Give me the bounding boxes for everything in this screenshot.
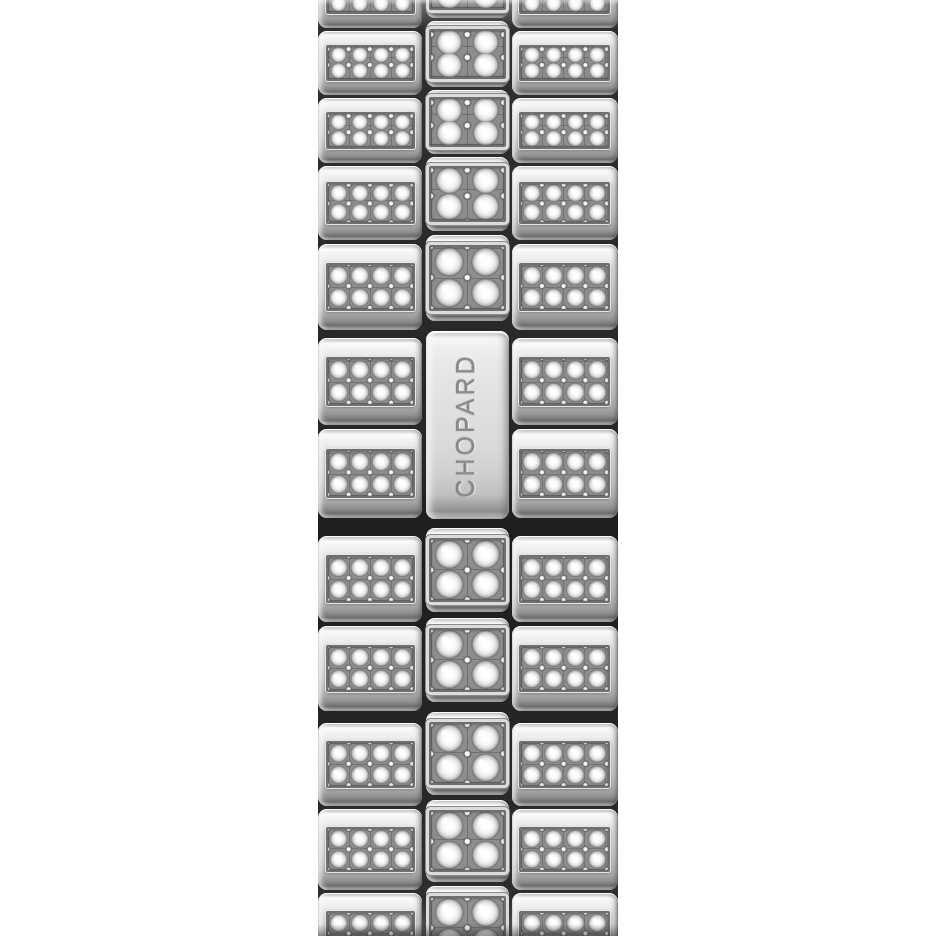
bracelet-link	[426, 21, 509, 87]
diamond-pave-panel	[429, 97, 505, 146]
bracelet-link	[318, 626, 422, 711]
diamond-pave-panel	[519, 449, 610, 498]
bracelet-link	[318, 893, 422, 936]
partial-bracelet-link	[318, 0, 422, 28]
diamond-pave-panel	[326, 0, 415, 14]
partial-bracelet-link	[512, 893, 618, 936]
bracelet-link	[512, 536, 618, 622]
diamond-pave-panel	[429, 245, 505, 310]
diamond-pave-panel	[326, 827, 415, 872]
diamond-pave-panel	[326, 911, 415, 936]
diamond-pave-panel	[429, 29, 505, 80]
bracelet-link	[318, 338, 422, 425]
bracelet-link	[512, 893, 618, 936]
bracelet-link	[318, 536, 422, 622]
bracelet-link	[512, 338, 618, 425]
bracelet-link	[426, 157, 509, 231]
brand-engraving: CHOPARD	[453, 353, 482, 497]
diamond-pave-panel	[429, 896, 505, 936]
bracelet-link	[426, 0, 509, 18]
diamond-pave-panel	[429, 166, 505, 223]
bracelet-link	[426, 235, 509, 321]
bracelet-link	[426, 886, 509, 936]
diamond-pave-panel	[519, 45, 610, 82]
bracelet-link	[512, 244, 618, 330]
diamond-pave-panel	[326, 182, 415, 224]
bracelet-link	[512, 0, 618, 28]
product-photo: CHOPARD	[0, 0, 936, 936]
bracelet-link	[318, 244, 422, 330]
diamond-pave-panel	[519, 911, 610, 936]
bracelet-link	[512, 98, 618, 163]
bracelet-link	[512, 626, 618, 711]
partial-bracelet-link	[426, 0, 509, 18]
diamond-pave-panel	[429, 0, 505, 10]
bracelet-column-right	[512, 0, 618, 936]
diamond-pave-panel	[429, 722, 505, 785]
diamond-pave-panel	[519, 555, 610, 603]
bracelet-link	[512, 429, 618, 518]
bracelet-column-left	[318, 0, 422, 936]
diamond-pave-panel	[519, 645, 610, 692]
bracelet-column-center: CHOPARD	[426, 0, 509, 936]
bracelet-link	[318, 809, 422, 890]
bracelet-link	[318, 429, 422, 518]
diamond-pave-panel	[326, 112, 415, 149]
diamond-pave-panel	[519, 112, 610, 149]
diamond-pave-panel	[519, 0, 610, 14]
partial-bracelet-link	[426, 886, 509, 936]
bracelet-link	[512, 809, 618, 890]
bracelet-link	[426, 618, 509, 702]
bracelet-link	[512, 723, 618, 806]
diamond-pave-panel	[519, 263, 610, 311]
diamond-pave-panel	[519, 827, 610, 872]
diamond-pave-panel	[519, 741, 610, 787]
bracelet-link	[426, 712, 509, 795]
diamond-pave-panel	[326, 263, 415, 311]
bracelet-link	[426, 90, 509, 154]
diamond-pave-panel	[429, 810, 505, 872]
bracelet-link	[318, 0, 422, 28]
diamond-pave-panel	[326, 449, 415, 498]
diamond-pave-panel	[519, 182, 610, 224]
diamond-pave-panel	[326, 357, 415, 405]
bracelet-link	[318, 31, 422, 95]
bracelet-link	[318, 723, 422, 806]
diamond-pave-panel	[429, 538, 505, 602]
watch-bracelet: CHOPARD	[318, 0, 618, 936]
partial-bracelet-link	[318, 893, 422, 936]
partial-bracelet-link	[512, 0, 618, 28]
diamond-pave-panel	[429, 628, 505, 692]
diamond-pave-panel	[519, 357, 610, 405]
diamond-pave-panel	[326, 741, 415, 787]
bracelet-link	[318, 166, 422, 240]
bracelet-link	[512, 31, 618, 95]
diamond-pave-panel	[326, 555, 415, 603]
bracelet-link	[318, 98, 422, 163]
bracelet-link	[512, 166, 618, 240]
bracelet-link	[426, 800, 509, 882]
clasp-cover: CHOPARD	[426, 331, 509, 519]
diamond-pave-panel	[326, 45, 415, 82]
bracelet-link	[426, 528, 509, 612]
diamond-pave-panel	[326, 645, 415, 692]
